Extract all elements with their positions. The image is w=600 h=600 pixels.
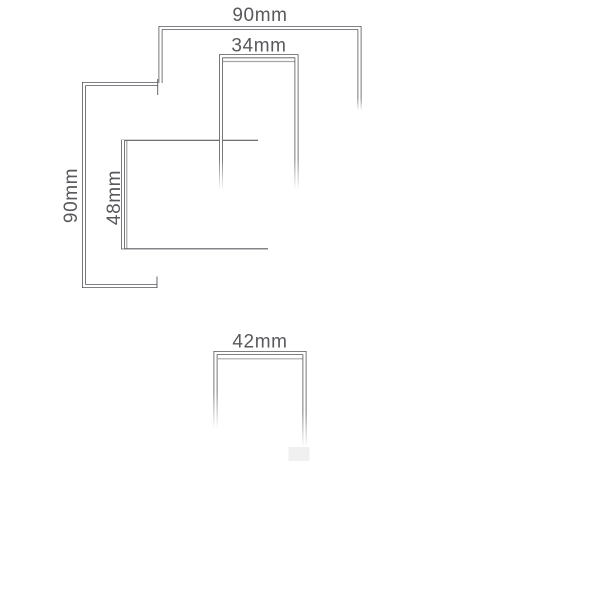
dimension-label-body-height: 48mm <box>104 170 125 225</box>
dimension-drawing: 90mm 34mm 90mm 48mm 42mm <box>0 0 600 600</box>
dimension-drawing-canvas: 90mm 34mm 90mm 48mm 42mm <box>0 0 600 600</box>
dimension-label-inner-width: 34mm <box>231 36 286 57</box>
dimension-label-overall-height: 90mm <box>61 168 82 223</box>
dimension-depth <box>216 353 305 452</box>
dimension-label-depth: 42mm <box>232 332 287 353</box>
object-outline <box>121 62 303 359</box>
line-fade-overlays <box>210 98 366 456</box>
faded-detail-patch <box>289 447 310 461</box>
dimension-label-overall-width: 90mm <box>232 5 287 26</box>
